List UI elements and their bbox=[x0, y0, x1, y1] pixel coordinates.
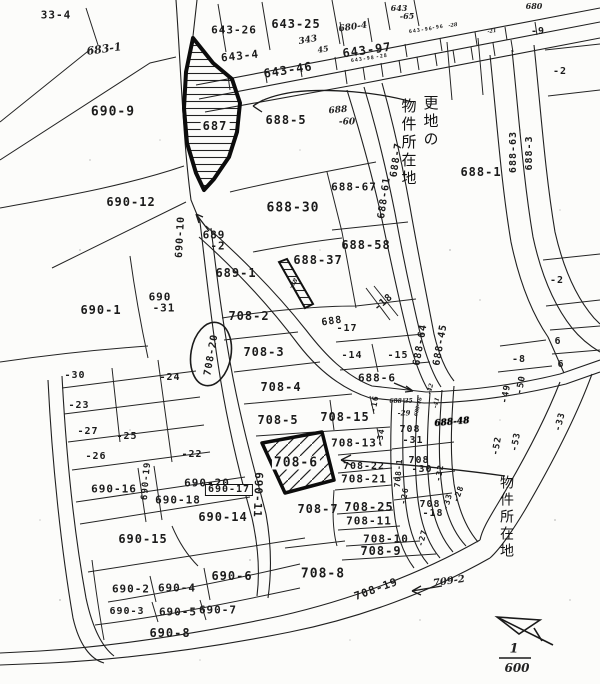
parcel-label: 690-14 bbox=[198, 511, 247, 523]
parcel-label: 708-1 bbox=[394, 458, 405, 488]
parcel-label: 708-25 bbox=[344, 501, 393, 513]
parcel-label: -50 bbox=[516, 375, 528, 396]
parcel-label: -49 bbox=[501, 384, 513, 405]
parcel-label: 708-7 bbox=[297, 503, 338, 515]
parcel-label: 343 bbox=[298, 35, 318, 47]
parcel-label: 45 bbox=[317, 44, 329, 54]
parcel-label: 643-25 bbox=[271, 18, 320, 30]
parcel-label: 688-35 bbox=[389, 399, 412, 405]
parcel-label: 690-11 bbox=[252, 472, 265, 518]
parcel-label: 708-13 bbox=[331, 438, 377, 449]
parcel-label: 708-10 bbox=[363, 534, 409, 545]
parcel-label: -52 bbox=[492, 436, 504, 457]
parcel-label: 708-19 bbox=[353, 576, 400, 602]
parcel-label: 643-46 bbox=[263, 60, 314, 80]
parcel-label: -96 bbox=[432, 25, 445, 32]
parcel-label: 690-12 bbox=[106, 196, 155, 208]
parcel-label: 690-9 bbox=[91, 106, 135, 119]
parcel-label: -2 bbox=[210, 241, 225, 252]
parcel-label: 683-1 bbox=[86, 41, 122, 57]
parcel-label: 33-4 bbox=[41, 10, 72, 21]
annotation-property-location: 物件所在地 bbox=[496, 475, 516, 560]
parcel-label: -34 bbox=[376, 428, 387, 447]
parcel-label: 708-22 bbox=[343, 462, 385, 472]
parcel-label: 690-5 bbox=[159, 607, 197, 618]
parcel-label: 690-2 bbox=[112, 584, 150, 595]
parcel-label: -65 bbox=[400, 12, 414, 20]
parcel-label: 690-4 bbox=[158, 583, 196, 594]
parcel-label: 6 bbox=[554, 337, 561, 347]
parcel-label: -21 bbox=[487, 29, 497, 35]
parcel-label: -26 bbox=[85, 452, 106, 462]
parcel-label: 643-26 bbox=[211, 25, 257, 36]
parcel-label: -31 bbox=[402, 436, 423, 446]
parcel-label: -15 bbox=[387, 351, 408, 361]
parcel-label: 687 bbox=[201, 120, 230, 132]
parcel-label: 708-8 bbox=[301, 568, 345, 581]
parcel-label: 708-11 bbox=[346, 516, 392, 527]
parcel-label: 680 bbox=[526, 2, 543, 10]
parcel-label: 690-16 bbox=[91, 484, 137, 495]
parcel-label: -33 bbox=[554, 412, 568, 433]
parcel-label: 708-3 bbox=[243, 346, 284, 358]
parcel-label: -32 bbox=[435, 464, 446, 483]
parcel-label: -30 bbox=[64, 371, 85, 381]
parcel-label: 690-18 bbox=[155, 495, 201, 506]
parcel-label: 708-4 bbox=[260, 381, 301, 393]
parcel-label: -53 bbox=[511, 432, 523, 453]
parcel-label: 688-3 bbox=[525, 135, 535, 170]
parcel-label: 688-64 bbox=[412, 323, 429, 366]
parcel-label: 680-4 bbox=[338, 22, 368, 35]
parcel-label: 708-21 bbox=[341, 474, 387, 485]
parcel-label: 708-6 bbox=[272, 457, 320, 470]
parcel-label: -28 bbox=[376, 54, 389, 61]
parcel-label: 690-3 bbox=[109, 607, 144, 617]
parcel-label: 643-4 bbox=[220, 49, 259, 64]
parcel-label: 688-67 bbox=[331, 182, 377, 193]
parcel-label: 688-37 bbox=[293, 254, 342, 266]
parcel-label: 690-8 bbox=[149, 627, 190, 639]
parcel-label: -28 bbox=[448, 23, 458, 29]
parcel-label: 688-63 bbox=[509, 131, 519, 173]
parcel-label: 690-17 bbox=[205, 484, 253, 496]
parcel-label: -60 bbox=[339, 119, 355, 128]
parcel-label: 688-6 bbox=[358, 373, 396, 384]
parcel-label: -18 bbox=[373, 292, 396, 313]
parcel-label: -30 bbox=[411, 465, 432, 475]
parcel-label: 690-6 bbox=[211, 570, 252, 582]
parcel-label: -8 bbox=[512, 355, 526, 365]
scale-numerator: 1 bbox=[509, 643, 518, 656]
parcel-label: 688-30 bbox=[267, 202, 320, 215]
parcel-label: -25 bbox=[116, 432, 137, 442]
parcel-label: 690-15 bbox=[118, 533, 167, 545]
parcel-label: 708-20 bbox=[203, 333, 220, 376]
parcel-label: 643-96 bbox=[409, 27, 434, 35]
parcel-label: 708-2 bbox=[228, 310, 269, 322]
parcel-label: -41 bbox=[433, 397, 442, 409]
parcel-label: 690-7 bbox=[199, 605, 237, 616]
parcel-label: 708-9 bbox=[360, 545, 401, 557]
parcel-label: -27 bbox=[77, 427, 98, 437]
parcel-label: 689-1 bbox=[215, 267, 256, 279]
parcel-label: -9 bbox=[531, 27, 545, 37]
parcel-label: 688-1 bbox=[460, 166, 501, 178]
parcel-label: 688-5 bbox=[265, 114, 306, 126]
parcel-label: -18 bbox=[422, 509, 443, 519]
parcel-label: 688 bbox=[328, 106, 348, 117]
parcel-label: -42 bbox=[427, 383, 436, 395]
annotation-vacant-line1: 更地の bbox=[421, 95, 442, 149]
parcel-label: 6 bbox=[557, 360, 564, 370]
parcel-label: -22 bbox=[181, 450, 202, 460]
parcel-label: -16 bbox=[370, 395, 381, 414]
parcel-label: 708-15 bbox=[320, 411, 369, 423]
parcel-label: 690-1 bbox=[80, 304, 121, 316]
parcel-label: -2 bbox=[553, 67, 567, 77]
parcel-label: -28 bbox=[452, 484, 465, 503]
parcel-label: 708 bbox=[399, 425, 420, 435]
parcel-label: 690-19 bbox=[141, 461, 153, 500]
parcel-label: 688-45 bbox=[432, 323, 449, 366]
parcel-label: 688-46 bbox=[414, 397, 424, 417]
parcel-label: -23 bbox=[68, 401, 89, 411]
parcel-label: -38 bbox=[288, 278, 299, 290]
parcel-label: 643-98 bbox=[351, 56, 376, 64]
label-layer: 33-4683-1690-9690-12690-1690-31689-2690-… bbox=[0, 0, 600, 684]
parcel-label: -2 bbox=[550, 276, 564, 286]
parcel-label: 688-48 bbox=[434, 417, 470, 429]
scale-denominator: 600 bbox=[504, 662, 529, 674]
parcel-label: 709-2 bbox=[432, 575, 465, 589]
parcel-label: -31 bbox=[153, 303, 176, 314]
cadastral-map: 33-4683-1690-9690-12690-1690-31689-2690-… bbox=[0, 0, 600, 684]
parcel-label: -27 bbox=[417, 529, 429, 548]
annotation-vacant-line2: 物件所在地 bbox=[399, 98, 420, 188]
parcel-label: -14 bbox=[341, 351, 362, 361]
parcel-label: 708-5 bbox=[257, 414, 298, 426]
parcel-label: 690-10 bbox=[175, 216, 187, 259]
parcel-label: -29 bbox=[398, 410, 411, 417]
parcel-label: 688-61 bbox=[377, 176, 393, 219]
parcel-label: -24 bbox=[159, 373, 180, 383]
parcel-label: -17 bbox=[336, 324, 357, 334]
parcel-label: -26 bbox=[400, 487, 411, 506]
parcel-label: 688-58 bbox=[341, 239, 390, 251]
